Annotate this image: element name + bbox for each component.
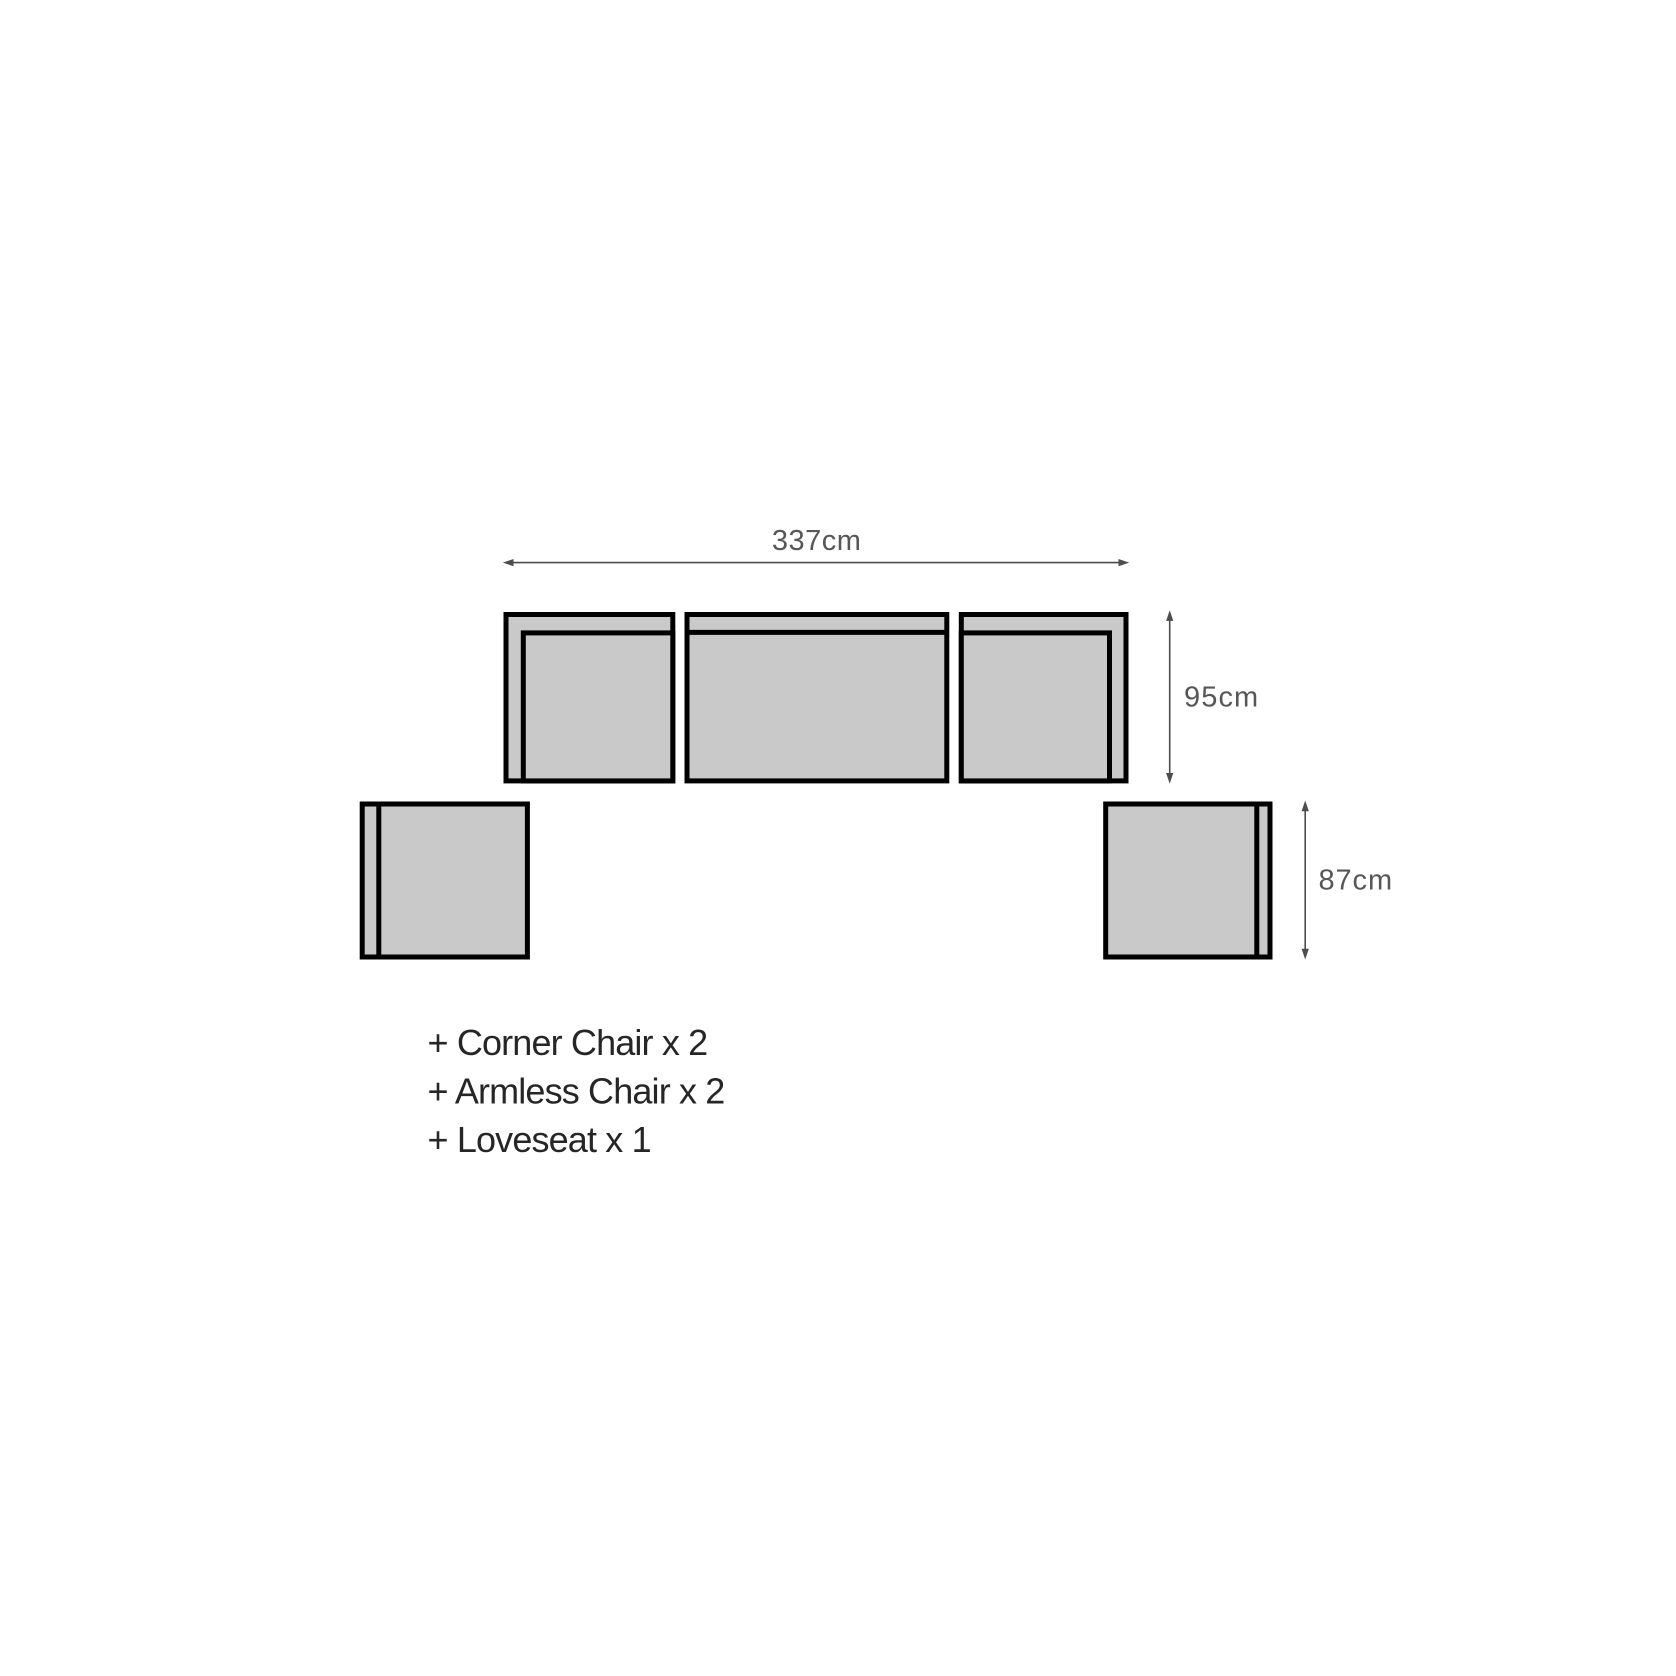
svg-text:95cm: 95cm bbox=[1184, 681, 1259, 713]
svg-text:337cm: 337cm bbox=[772, 525, 862, 557]
svg-text:+ Loveseat x 1: + Loveseat x 1 bbox=[428, 1119, 651, 1160]
svg-text:+ Corner Chair x 2: + Corner Chair x 2 bbox=[428, 1022, 708, 1063]
svg-text:87cm: 87cm bbox=[1319, 865, 1394, 897]
svg-text:+ Armless Chair x 2: + Armless Chair x 2 bbox=[428, 1071, 725, 1112]
